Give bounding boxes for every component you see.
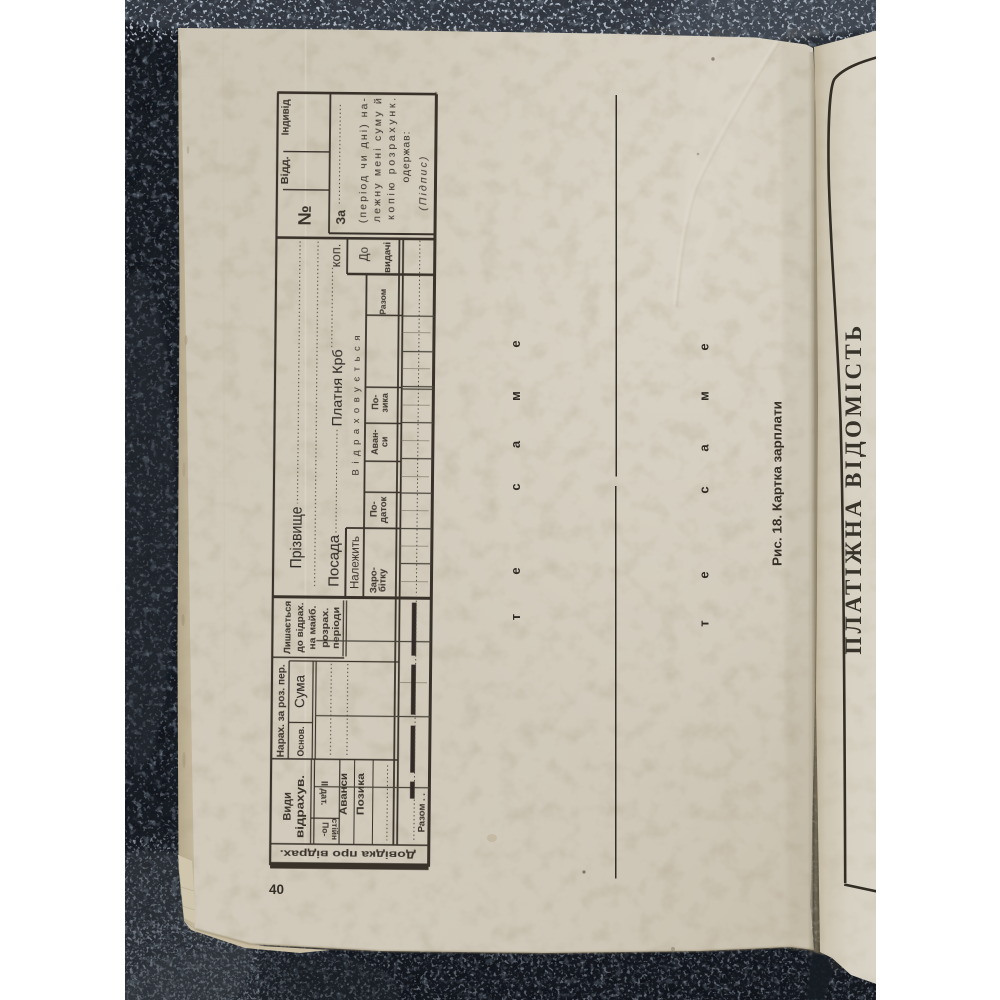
svg-text:коп.: коп. <box>328 243 343 267</box>
svg-text:№: № <box>295 205 315 225</box>
svg-text:одержав:: одержав: <box>400 131 413 182</box>
svg-text:(Підпис): (Підпис) <box>417 157 430 211</box>
svg-text:Довідка про відрах.: Довідка про відрах. <box>279 847 415 859</box>
svg-text:даток: даток <box>378 496 389 523</box>
svg-text:е: е <box>696 343 711 350</box>
svg-text:По-: По- <box>321 822 331 836</box>
svg-text:Нарах. за роз. пер.: Нарах. за роз. пер. <box>276 664 288 757</box>
svg-text:Платня Крб: Платня Крб <box>329 349 346 426</box>
svg-text:За: За <box>334 209 348 225</box>
svg-text:си: си <box>379 437 389 448</box>
svg-text:е: е <box>508 340 523 347</box>
svg-text:Відд.: Відд. <box>280 156 291 184</box>
svg-text:е: е <box>508 567 523 574</box>
svg-text:зика: зика <box>380 392 390 413</box>
svg-text:до відрах.: до відрах. <box>295 602 307 652</box>
svg-text:с: с <box>696 486 711 493</box>
svg-text:Основ.: Основ. <box>296 726 307 756</box>
svg-text:Аванси: Аванси <box>339 773 350 815</box>
svg-text:40: 40 <box>269 882 284 897</box>
svg-text:Сума: Сума <box>291 675 307 708</box>
svg-text:До: До <box>359 247 371 261</box>
svg-text:бітку: бітку <box>377 568 388 592</box>
svg-text:м: м <box>696 391 711 401</box>
svg-text:Позика: Позика <box>356 773 367 816</box>
svg-text:ІІ дат.: ІІ дат. <box>319 781 329 805</box>
svg-text:м: м <box>508 391 523 401</box>
svg-text:е: е <box>696 571 711 578</box>
svg-text:видачі: видачі <box>382 242 393 273</box>
svg-text:стійн: стійн <box>330 818 340 840</box>
svg-text:Індивід: Індивід <box>281 99 292 136</box>
svg-text:періоди: періоди <box>331 607 342 649</box>
svg-text:т: т <box>508 614 523 620</box>
svg-text:Рис. 18. Картка зарплати: Рис. 18. Картка зарплати <box>769 401 784 566</box>
svg-text:Лишається: Лишається <box>282 601 294 654</box>
svg-text:с: с <box>508 483 523 490</box>
svg-text:ПЛАТІЖНА ВІДОМІСТЬ: ПЛАТІЖНА ВІДОМІСТЬ <box>841 322 866 654</box>
svg-text:а: а <box>508 440 523 448</box>
svg-text:(період чи дні) на-: (період чи дні) на- <box>357 98 370 224</box>
svg-text:Належить: Належить <box>349 536 362 589</box>
svg-text:відрахув.: відрахув. <box>294 775 307 838</box>
svg-text:Посада: Посада <box>325 534 343 587</box>
svg-text:т: т <box>696 620 711 626</box>
svg-text:а: а <box>696 444 711 452</box>
svg-text:Разом . .: Разом . . <box>416 793 427 832</box>
svg-text:Разом: Разом <box>378 289 388 315</box>
svg-text:Прізвище: Прізвище <box>288 506 306 568</box>
svg-text:Види: Види <box>281 792 293 821</box>
svg-text:на майб.: на майб. <box>307 606 318 650</box>
svg-text:розрах.: розрах. <box>320 608 331 648</box>
